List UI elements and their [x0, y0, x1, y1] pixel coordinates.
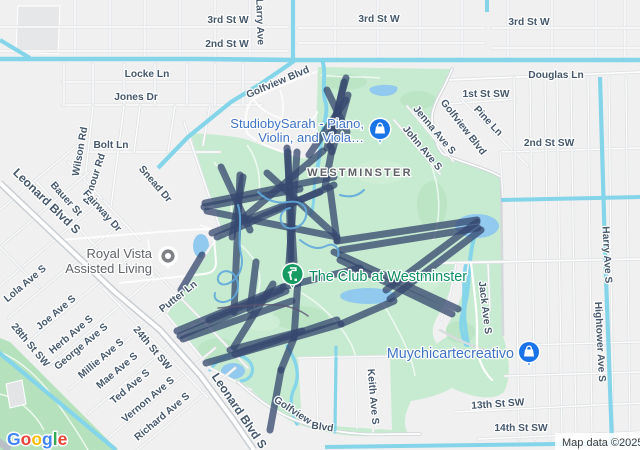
svg-text:Larry Ave: Larry Ave — [253, 0, 266, 46]
svg-text:The Club at Westminster: The Club at Westminster — [309, 269, 467, 285]
svg-text:Jones Dr: Jones Dr — [114, 92, 158, 103]
svg-text:Royal Vista: Royal Vista — [86, 246, 152, 261]
svg-text:Violin, and Viola…: Violin, and Viola… — [258, 130, 364, 145]
svg-text:StudiobySarah - Piano,: StudiobySarah - Piano, — [230, 116, 364, 131]
svg-text:Bolt Ln: Bolt Ln — [93, 140, 128, 151]
svg-text:Muychicartecreativo: Muychicartecreativo — [387, 346, 514, 362]
svg-text:2nd St W: 2nd St W — [205, 39, 249, 50]
svg-text:WESTMINSTER: WESTMINSTER — [307, 167, 412, 179]
svg-text:14th St SW: 14th St SW — [494, 423, 548, 434]
svg-text:3rd St W: 3rd St W — [508, 17, 550, 28]
svg-text:Douglas Ln: Douglas Ln — [528, 70, 583, 81]
svg-text:Assisted Living: Assisted Living — [65, 261, 152, 276]
svg-text:3rd St W: 3rd St W — [207, 15, 249, 26]
svg-text:Google: Google — [7, 429, 68, 449]
svg-text:1st St SW: 1st St SW — [463, 89, 510, 100]
svg-text:2nd St SW: 2nd St SW — [524, 138, 575, 149]
svg-text:Locke Ln: Locke Ln — [125, 69, 170, 80]
svg-text:3rd St W: 3rd St W — [358, 14, 400, 25]
svg-text:Map data ©2025: Map data ©2025 — [562, 437, 640, 449]
